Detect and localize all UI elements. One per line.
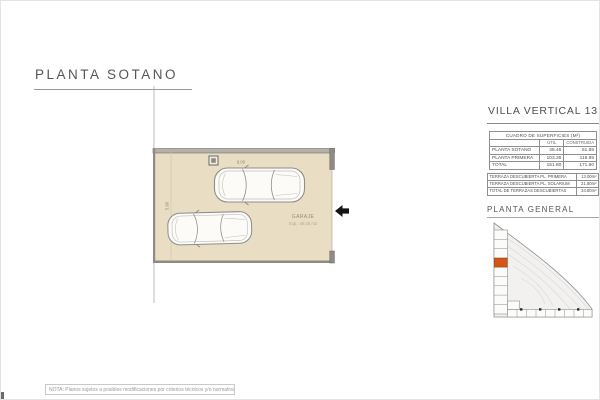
villa-strip-left xyxy=(494,230,508,314)
terrace-value: 34.80m² xyxy=(577,188,599,195)
construida-value: 119.95 xyxy=(564,154,597,162)
construida-value: 51.85 xyxy=(564,147,597,155)
util-value: 151.80 xyxy=(540,162,564,170)
wall-left xyxy=(153,149,155,264)
row-label: TOTAL xyxy=(490,162,540,170)
corner-unit xyxy=(508,301,520,310)
surfaces-table: CUADRO DE SUPERFICIES (M²) ÚTIL CONSTRUI… xyxy=(489,131,597,170)
row-label: PLANTA PRIMERA xyxy=(490,154,540,162)
terrace-row: TERRAZA DESCUBIERTA PL. PRIMERA 13.00m² xyxy=(488,173,599,180)
terraces-table: TERRAZA DESCUBIERTA PL. PRIMERA 13.00m² … xyxy=(487,173,599,196)
surfaces-row: TOTAL 151.80 171.80 xyxy=(490,162,597,170)
car-icon xyxy=(215,165,305,205)
siteplan-drawing xyxy=(487,222,599,326)
pillar-icon xyxy=(209,156,218,165)
util-value: 48.45 xyxy=(540,147,564,155)
villa-title: VILLA VERTICAL 13 xyxy=(487,105,599,124)
wall-bottom xyxy=(153,261,333,264)
terrace-label: TOTAL DE TERRAZAS DESCUBIERTAS xyxy=(488,188,577,195)
terrace-label: TERRAZA DESCUBIERTA PL. SOLARIUM xyxy=(488,181,577,188)
surfaces-row: PLANTA PRIMERA 103.35 119.95 xyxy=(490,154,597,162)
surfaces-caption-row: CUADRO DE SUPERFICIES (M²) xyxy=(490,132,597,140)
surfaces-row: PLANTA SOTANO 48.45 51.85 xyxy=(490,147,597,155)
info-panel: VILLA VERTICAL 13 CUADRO DE SUPERFICIES … xyxy=(487,105,599,326)
util-value: 103.35 xyxy=(540,154,564,162)
surfaces-header-row: ÚTIL CONSTRUIDA xyxy=(490,139,597,147)
terrace-row: TOTAL DE TERRAZAS DESCUBIERTAS 34.80m² xyxy=(488,188,599,195)
col-construida: CONSTRUIDA xyxy=(564,139,597,147)
wall-top xyxy=(153,149,335,154)
dimension-label-left: 5.90 xyxy=(165,201,170,210)
room-area-label: Sup.: 48.45 m2 xyxy=(289,221,318,226)
wall-right-top xyxy=(330,149,335,170)
highlighted-unit-villa-13 xyxy=(494,258,507,267)
terrace-value: 13.00m² xyxy=(577,173,599,180)
siteplan-title: PLANTA GENERAL xyxy=(487,205,599,218)
construida-value: 171.80 xyxy=(564,162,597,170)
floorplan-drawing: 9.00 5.90 GARAJE Sup.: 48.45 m2 xyxy=(141,81,371,311)
car-icon xyxy=(167,209,252,248)
col-util: ÚTIL xyxy=(540,139,564,147)
row-label: PLANTA SOTANO xyxy=(490,147,540,155)
disclaimer-note: NOTA: Planos sujetos a posibles modifica… xyxy=(45,384,235,395)
wall-right-bottom xyxy=(330,251,335,263)
dimension-label-top: 9.00 xyxy=(237,160,246,165)
drawing-sheet: PLANTA SOTANO 9.00 5.90 xyxy=(0,0,600,400)
entry-arrow-icon xyxy=(335,205,349,217)
page-corner-mark xyxy=(1,392,4,400)
surfaces-caption: CUADRO DE SUPERFICIES (M²) xyxy=(490,132,597,140)
villa-strip-bottom xyxy=(508,309,593,317)
room-label: GARAJE xyxy=(292,214,315,220)
terrace-label: TERRAZA DESCUBIERTA PL. PRIMERA xyxy=(488,173,577,180)
terrace-value: 21.80m² xyxy=(577,181,599,188)
terrace-row: TERRAZA DESCUBIERTA PL. SOLARIUM 21.80m² xyxy=(488,181,599,188)
